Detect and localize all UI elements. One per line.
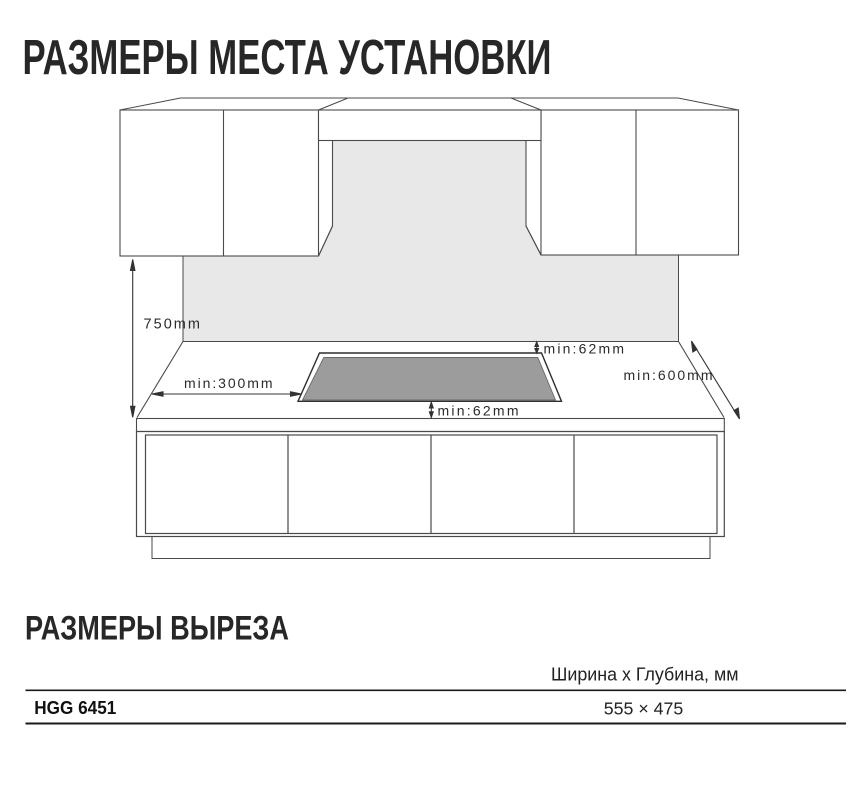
svg-text:min:300mm: min:300mm: [184, 375, 273, 391]
svg-text:min:62mm: min:62mm: [544, 341, 625, 357]
svg-text:min:62mm: min:62mm: [438, 403, 519, 419]
svg-text:РАЗМЕРЫ ВЫРЕЗА: РАЗМЕРЫ ВЫРЕЗА: [25, 610, 289, 648]
svg-text:HGG 6451: HGG 6451: [34, 698, 116, 718]
svg-text:Ширина x Глубина, мм: Ширина x Глубина, мм: [551, 664, 739, 685]
svg-text:РАЗМЕРЫ МЕСТА УСТАНОВКИ: РАЗМЕРЫ МЕСТА УСТАНОВКИ: [23, 30, 552, 85]
svg-text:555 × 475: 555 × 475: [604, 698, 684, 718]
svg-text:750mm: 750mm: [144, 317, 201, 333]
